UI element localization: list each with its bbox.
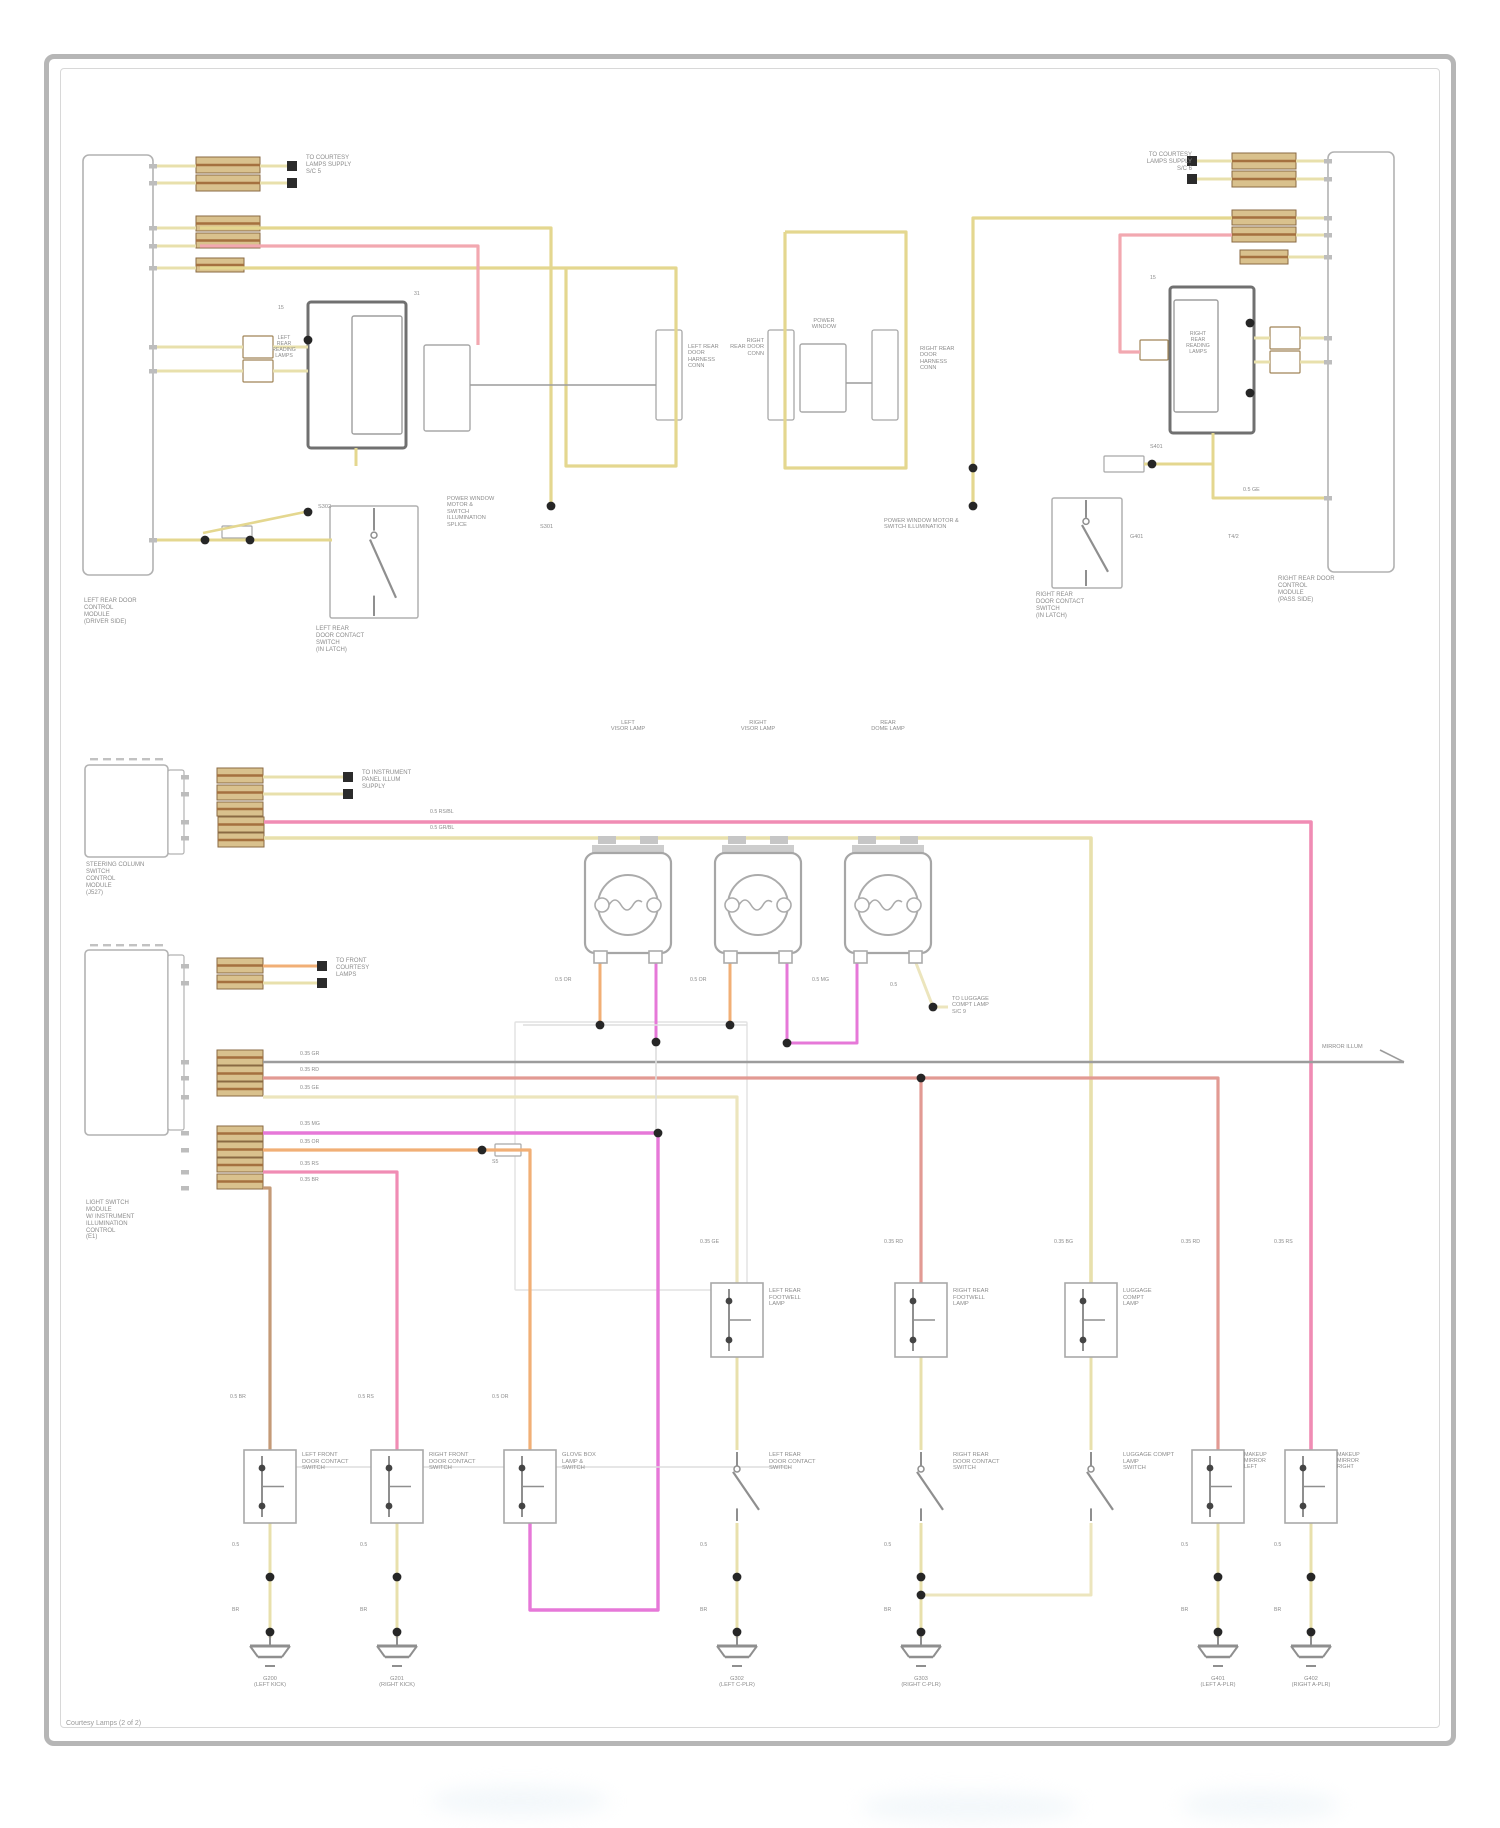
junction-dot (266, 1573, 275, 1582)
label-74: 0.5 BR (230, 1395, 290, 1401)
cc-lr-footwell-pin (726, 1298, 733, 1305)
right-mini-block-a (1270, 327, 1300, 349)
label-54: LUGGAGE COMPT LAMP SWITCH (1123, 1452, 1215, 1472)
label-70: 0.35 RD (884, 1240, 944, 1246)
junction-dot (917, 1628, 926, 1637)
cc-lf-door-pin (259, 1465, 266, 1472)
label-27: MIRROR ILLUM (1322, 1044, 1402, 1050)
gnd-g302-s1 (717, 1646, 725, 1657)
junction-dot (304, 508, 313, 517)
label-41: 0.35 OR (300, 1140, 364, 1146)
label-0: TO COURTESY LAMPS SUPPLY S/C 5 (306, 155, 446, 176)
wire-switch-diag-yel (203, 512, 305, 533)
junction-square (317, 961, 327, 971)
junction-dot (733, 1573, 742, 1582)
wire-pink-bus-2 (263, 1172, 397, 1450)
dash-tick (155, 944, 163, 946)
label-36: S5 (492, 1160, 536, 1166)
label-62: BR (700, 1608, 734, 1614)
lamp-rear-dome-stub (854, 951, 867, 963)
junction-dot (1246, 319, 1255, 328)
sw-rr-contact-blade (917, 1472, 943, 1510)
column-module-box (85, 765, 168, 857)
gnd-g402-s1 (1291, 1646, 1299, 1657)
pin-tick (1324, 233, 1332, 238)
lamp-right-visor-stub (724, 951, 737, 963)
junction-square (343, 789, 353, 799)
lamp-left-visor-term (647, 898, 661, 912)
junction-square (317, 978, 327, 988)
pin-tick (149, 181, 157, 186)
left-module-inner (352, 316, 402, 434)
junction-dot (1214, 1573, 1223, 1582)
cc-lugg-lamp-pin (1080, 1298, 1087, 1305)
dash-tick (90, 944, 98, 946)
lamp-right-visor-term (777, 898, 791, 912)
pin-tick (149, 266, 157, 271)
pin-tick (181, 1095, 189, 1100)
wiring-diagram-page: TO COURTESY LAMPS SUPPLY S/C 5TO COURTES… (0, 0, 1500, 1828)
light-switch-box (85, 950, 168, 1135)
label-77: G200 (LEFT KICK) (228, 1676, 312, 1689)
right-mini-block-b (1270, 351, 1300, 373)
label-18: RIGHT REAR DOOR CONTACT SWITCH (IN LATCH… (1036, 592, 1140, 620)
pin-tick (1324, 255, 1332, 260)
right-module-inner (1174, 300, 1218, 412)
dash-tick (129, 944, 137, 946)
sw-left-door-pivot (371, 532, 377, 538)
label-73: 0.35 RS (1274, 1240, 1334, 1246)
label-14: S302 (318, 504, 378, 510)
label-55: MAKEUP MIRROR LEFT (1244, 1452, 1304, 1471)
dash-tick (129, 758, 137, 760)
label-11: POWER WINDOW MOTOR & SWITCH ILLUMINATION… (447, 496, 547, 528)
pin-tick (149, 538, 157, 543)
label-8: RIGHT REAR DOOR CONN (700, 338, 764, 357)
pin-tick (181, 1148, 189, 1153)
label-26: LIGHT SWITCH MODULE W/ INSTRUMENT ILLUMI… (86, 1200, 216, 1241)
gnd-g201-s1 (377, 1646, 385, 1657)
label-28: LEFT VISOR LAMP (583, 720, 673, 733)
label-15: LEFT REAR DOOR CONTROL MODULE (DRIVER SI… (84, 598, 202, 626)
label-4: 15 (278, 306, 304, 312)
mid-conn-column-r2 (872, 330, 898, 420)
junction-dot (1307, 1573, 1316, 1582)
label-49: LEFT REAR FOOTWELL LAMP (769, 1288, 865, 1308)
label-20: T4/2 (1228, 534, 1284, 540)
right-door-module-box (1328, 152, 1394, 572)
lamp-rear-dome-stub (909, 951, 922, 963)
sw-rr-contact-pivot (918, 1466, 924, 1472)
cc-lugg-lamp-pin (1080, 1337, 1087, 1344)
label-76: 0.5 OR (492, 1395, 552, 1401)
sw-right-door-pivot (1083, 518, 1089, 524)
junction-dot (1148, 460, 1157, 469)
label-65: 0.5 (1181, 1543, 1215, 1549)
junction-dot (969, 502, 978, 511)
pin-tick (1324, 360, 1332, 365)
label-40: 0.35 MG (300, 1122, 364, 1128)
label-61: 0.5 (700, 1543, 734, 1549)
cc-rr-footwell-pin (910, 1337, 917, 1344)
junction-square (1187, 174, 1197, 184)
label-35: TO LUGGAGE COMPT LAMP S/C 9 (952, 996, 1072, 1015)
pin-tick (1324, 177, 1332, 182)
label-80: G303 (RIGHT C-PLR) (879, 1676, 963, 1689)
label-47: RIGHT FRONT DOOR CONTACT SWITCH (429, 1452, 521, 1472)
cc-mirror-l-pin (1207, 1503, 1214, 1510)
lamp-right-visor-term (725, 898, 739, 912)
label-81: G401 (LEFT A-PLR) (1176, 1676, 1260, 1689)
label-78: G201 (RIGHT KICK) (355, 1676, 439, 1689)
junction-dot (929, 1003, 938, 1012)
label-22: 0.5 GE (1243, 487, 1307, 493)
junction-dot (783, 1039, 792, 1048)
wire-gray-bus-end-tick (1380, 1050, 1404, 1062)
pin-tick (181, 1076, 189, 1081)
label-6: 15 (1150, 276, 1176, 282)
lamp-left-visor-tab (598, 836, 616, 844)
junction-dot (393, 1628, 402, 1637)
lamp-rear-dome-term (907, 898, 921, 912)
label-69: 0.35 GE (700, 1240, 760, 1246)
label-59: 0.5 (360, 1543, 394, 1549)
pin-tick (149, 164, 157, 169)
dash-tick (142, 944, 150, 946)
pin-tick (181, 1131, 189, 1136)
label-29: RIGHT VISOR LAMP (713, 720, 803, 733)
gnd-g402-s2 (1323, 1646, 1331, 1657)
pin-tick (1324, 159, 1332, 164)
lamp-left-visor-stub (649, 951, 662, 963)
junction-dot (246, 536, 255, 545)
lamp-left-visor-term (595, 898, 609, 912)
label-58: BR (232, 1608, 266, 1614)
right-below-conn (1104, 456, 1144, 472)
junction-dot (266, 1628, 275, 1637)
left-module-conn (424, 345, 470, 431)
junction-square (343, 772, 353, 782)
lamp-rear-dome-term (855, 898, 869, 912)
pin-tick (149, 369, 157, 374)
label-44: 0.5 RS/BL (430, 810, 500, 816)
gnd-g200-s1 (250, 1646, 258, 1657)
pin-tick (1324, 216, 1332, 221)
gnd-g401-s1 (1198, 1646, 1206, 1657)
pin-tick (181, 1170, 189, 1175)
junction-dot (596, 1021, 605, 1030)
label-33: 0.5 MG (812, 978, 852, 984)
label-67: 0.5 (1274, 1543, 1308, 1549)
junction-dot (917, 1591, 926, 1600)
mid-conn-column-left (656, 330, 682, 420)
label-53: RIGHT REAR DOOR CONTACT SWITCH (953, 1452, 1049, 1472)
label-71: 0.35 BG (1054, 1240, 1114, 1246)
dash-tick (142, 758, 150, 760)
junction-dot (478, 1146, 487, 1155)
cc-lr-footwell-pin (726, 1337, 733, 1344)
gnd-g303-s2 (933, 1646, 941, 1657)
junction-dot (969, 464, 978, 473)
pin-tick (181, 775, 189, 780)
label-50: RIGHT REAR FOOTWELL LAMP (953, 1288, 1049, 1308)
label-52: LEFT REAR DOOR CONTACT SWITCH (769, 1452, 865, 1472)
label-34: 0.5 (890, 983, 930, 989)
pin-tick (181, 981, 189, 986)
gnd-g401-s2 (1230, 1646, 1238, 1657)
label-79: G302 (LEFT C-PLR) (695, 1676, 779, 1689)
wire-yellow-share (921, 1523, 1091, 1595)
junction-dot (547, 502, 556, 511)
label-39: 0.35 GE (300, 1086, 364, 1092)
pin-tick (1324, 336, 1332, 341)
gnd-g200-s2 (282, 1646, 290, 1657)
label-82: G402 (RIGHT A-PLR) (1269, 1676, 1353, 1689)
gnd-g201-s2 (409, 1646, 417, 1657)
junction-dot (1246, 389, 1255, 398)
left-mini-block-b (243, 360, 273, 382)
junction-dot (733, 1628, 742, 1637)
label-5: 31 (414, 292, 440, 298)
mid-conn-column-r1 (768, 330, 794, 420)
scan-artifact (860, 1792, 1080, 1822)
gnd-g302-s2 (749, 1646, 757, 1657)
junction-dot (654, 1129, 663, 1138)
label-32: 0.5 OR (690, 978, 730, 984)
label-1: TO COURTESY LAMPS SUPPLY S/C 6 (1108, 152, 1192, 173)
sw-lugg-contact-pivot (1088, 1466, 1094, 1472)
label-12: POWER WINDOW MOTOR & SWITCH ILLUMINATION (884, 518, 1018, 531)
page-caption: Courtesy Lamps (2 of 2) (66, 1720, 141, 1727)
dash-tick (103, 758, 111, 760)
scan-artifact (1180, 1790, 1340, 1820)
lamp-right-visor-tab (770, 836, 788, 844)
label-68: BR (1274, 1608, 1308, 1614)
label-66: BR (1181, 1608, 1215, 1614)
label-25: TO FRONT COURTESY LAMPS (336, 958, 448, 979)
label-48: GLOVE BOX LAMP & SWITCH (562, 1452, 654, 1472)
column-strip-1 (168, 770, 184, 854)
label-9: RIGHT REAR DOOR HARNESS CONN (920, 346, 990, 372)
junction-dot (1214, 1628, 1223, 1637)
dash-tick (155, 758, 163, 760)
label-43: 0.35 BR (300, 1178, 364, 1184)
pin-tick (149, 226, 157, 231)
junction-dot (917, 1573, 926, 1582)
label-72: 0.35 RD (1181, 1240, 1241, 1246)
junction-square (287, 178, 297, 188)
label-57: 0.5 (232, 1543, 266, 1549)
label-37: 0.35 GR (300, 1052, 364, 1058)
pin-tick (181, 1060, 189, 1065)
lamp-right-visor-tab (728, 836, 746, 844)
dash-tick (90, 758, 98, 760)
dash-tick (116, 758, 124, 760)
gnd-g303-s1 (901, 1646, 909, 1657)
label-10: POWER WINDOW (796, 318, 852, 331)
dash-tick (103, 944, 111, 946)
label-2: LEFT REAR READING LAMPS (262, 336, 306, 360)
label-60: BR (360, 1608, 394, 1614)
right-mini-block-c (1140, 340, 1168, 360)
cc-mirror-r-pin (1300, 1503, 1307, 1510)
label-30: REAR DOME LAMP (843, 720, 933, 733)
label-31: 0.5 OR (555, 978, 595, 984)
label-21: S401 (1150, 444, 1206, 450)
mid-window-box (800, 344, 846, 412)
label-3: RIGHT REAR READING LAMPS (1178, 332, 1218, 356)
cc-rr-footwell-pin (910, 1298, 917, 1305)
label-64: BR (884, 1608, 918, 1614)
junction-square (287, 161, 297, 171)
pin-tick (149, 244, 157, 249)
junction-dot (1307, 1628, 1316, 1637)
lamp-left-visor-tab (640, 836, 658, 844)
junction-dot (201, 536, 210, 545)
label-46: LEFT FRONT DOOR CONTACT SWITCH (302, 1452, 394, 1472)
label-19: G401 (1130, 534, 1186, 540)
pin-tick (181, 820, 189, 825)
cc-glovebox-pin (519, 1503, 526, 1510)
cc-lf-door-pin (259, 1503, 266, 1510)
label-51: LUGGAGE COMPT LAMP (1123, 1288, 1219, 1308)
label-38: 0.35 RD (300, 1068, 364, 1074)
pin-tick (181, 964, 189, 969)
label-42: 0.35 RS (300, 1162, 364, 1168)
lamp-right-visor-stub (779, 951, 792, 963)
diagram-scene (0, 0, 1500, 1828)
label-16: RIGHT REAR DOOR CONTROL MODULE (PASS SID… (1278, 576, 1396, 604)
sw-lr-contact-pivot (734, 1466, 740, 1472)
label-45: 0.5 GR/BL (430, 826, 500, 832)
label-17: LEFT REAR DOOR CONTACT SWITCH (IN LATCH) (316, 626, 426, 654)
pin-tick (181, 1186, 189, 1191)
pin-tick (181, 836, 189, 841)
label-56: MAKEUP MIRROR RIGHT (1337, 1452, 1397, 1471)
pin-tick (181, 792, 189, 797)
junction-dot (726, 1021, 735, 1030)
label-63: 0.5 (884, 1543, 918, 1549)
label-23: TO INSTRUMENT PANEL ILLUM SUPPLY (362, 770, 474, 791)
label-13: S301 (540, 524, 600, 530)
lamp-rear-dome-tab (858, 836, 876, 844)
pin-tick (149, 345, 157, 350)
junction-dot (393, 1573, 402, 1582)
wire-lamp2-magenta (787, 963, 857, 1043)
pin-tick (1324, 496, 1332, 501)
lamp-left-visor-stub (594, 951, 607, 963)
cc-rf-door-pin (386, 1503, 393, 1510)
dash-tick (116, 944, 124, 946)
sw-lugg-contact-blade (1087, 1472, 1113, 1510)
scan-artifact (430, 1786, 610, 1816)
label-75: 0.5 RS (358, 1395, 418, 1401)
wire-brown-wire (263, 1188, 270, 1450)
label-24: STEERING COLUMN SWITCH CONTROL MODULE (J… (86, 862, 208, 896)
sw-lr-contact-blade (733, 1472, 759, 1510)
lamp-rear-dome-tab (900, 836, 918, 844)
junction-dot (917, 1074, 926, 1083)
left-door-module-box (83, 155, 153, 575)
junction-dot (652, 1038, 661, 1047)
